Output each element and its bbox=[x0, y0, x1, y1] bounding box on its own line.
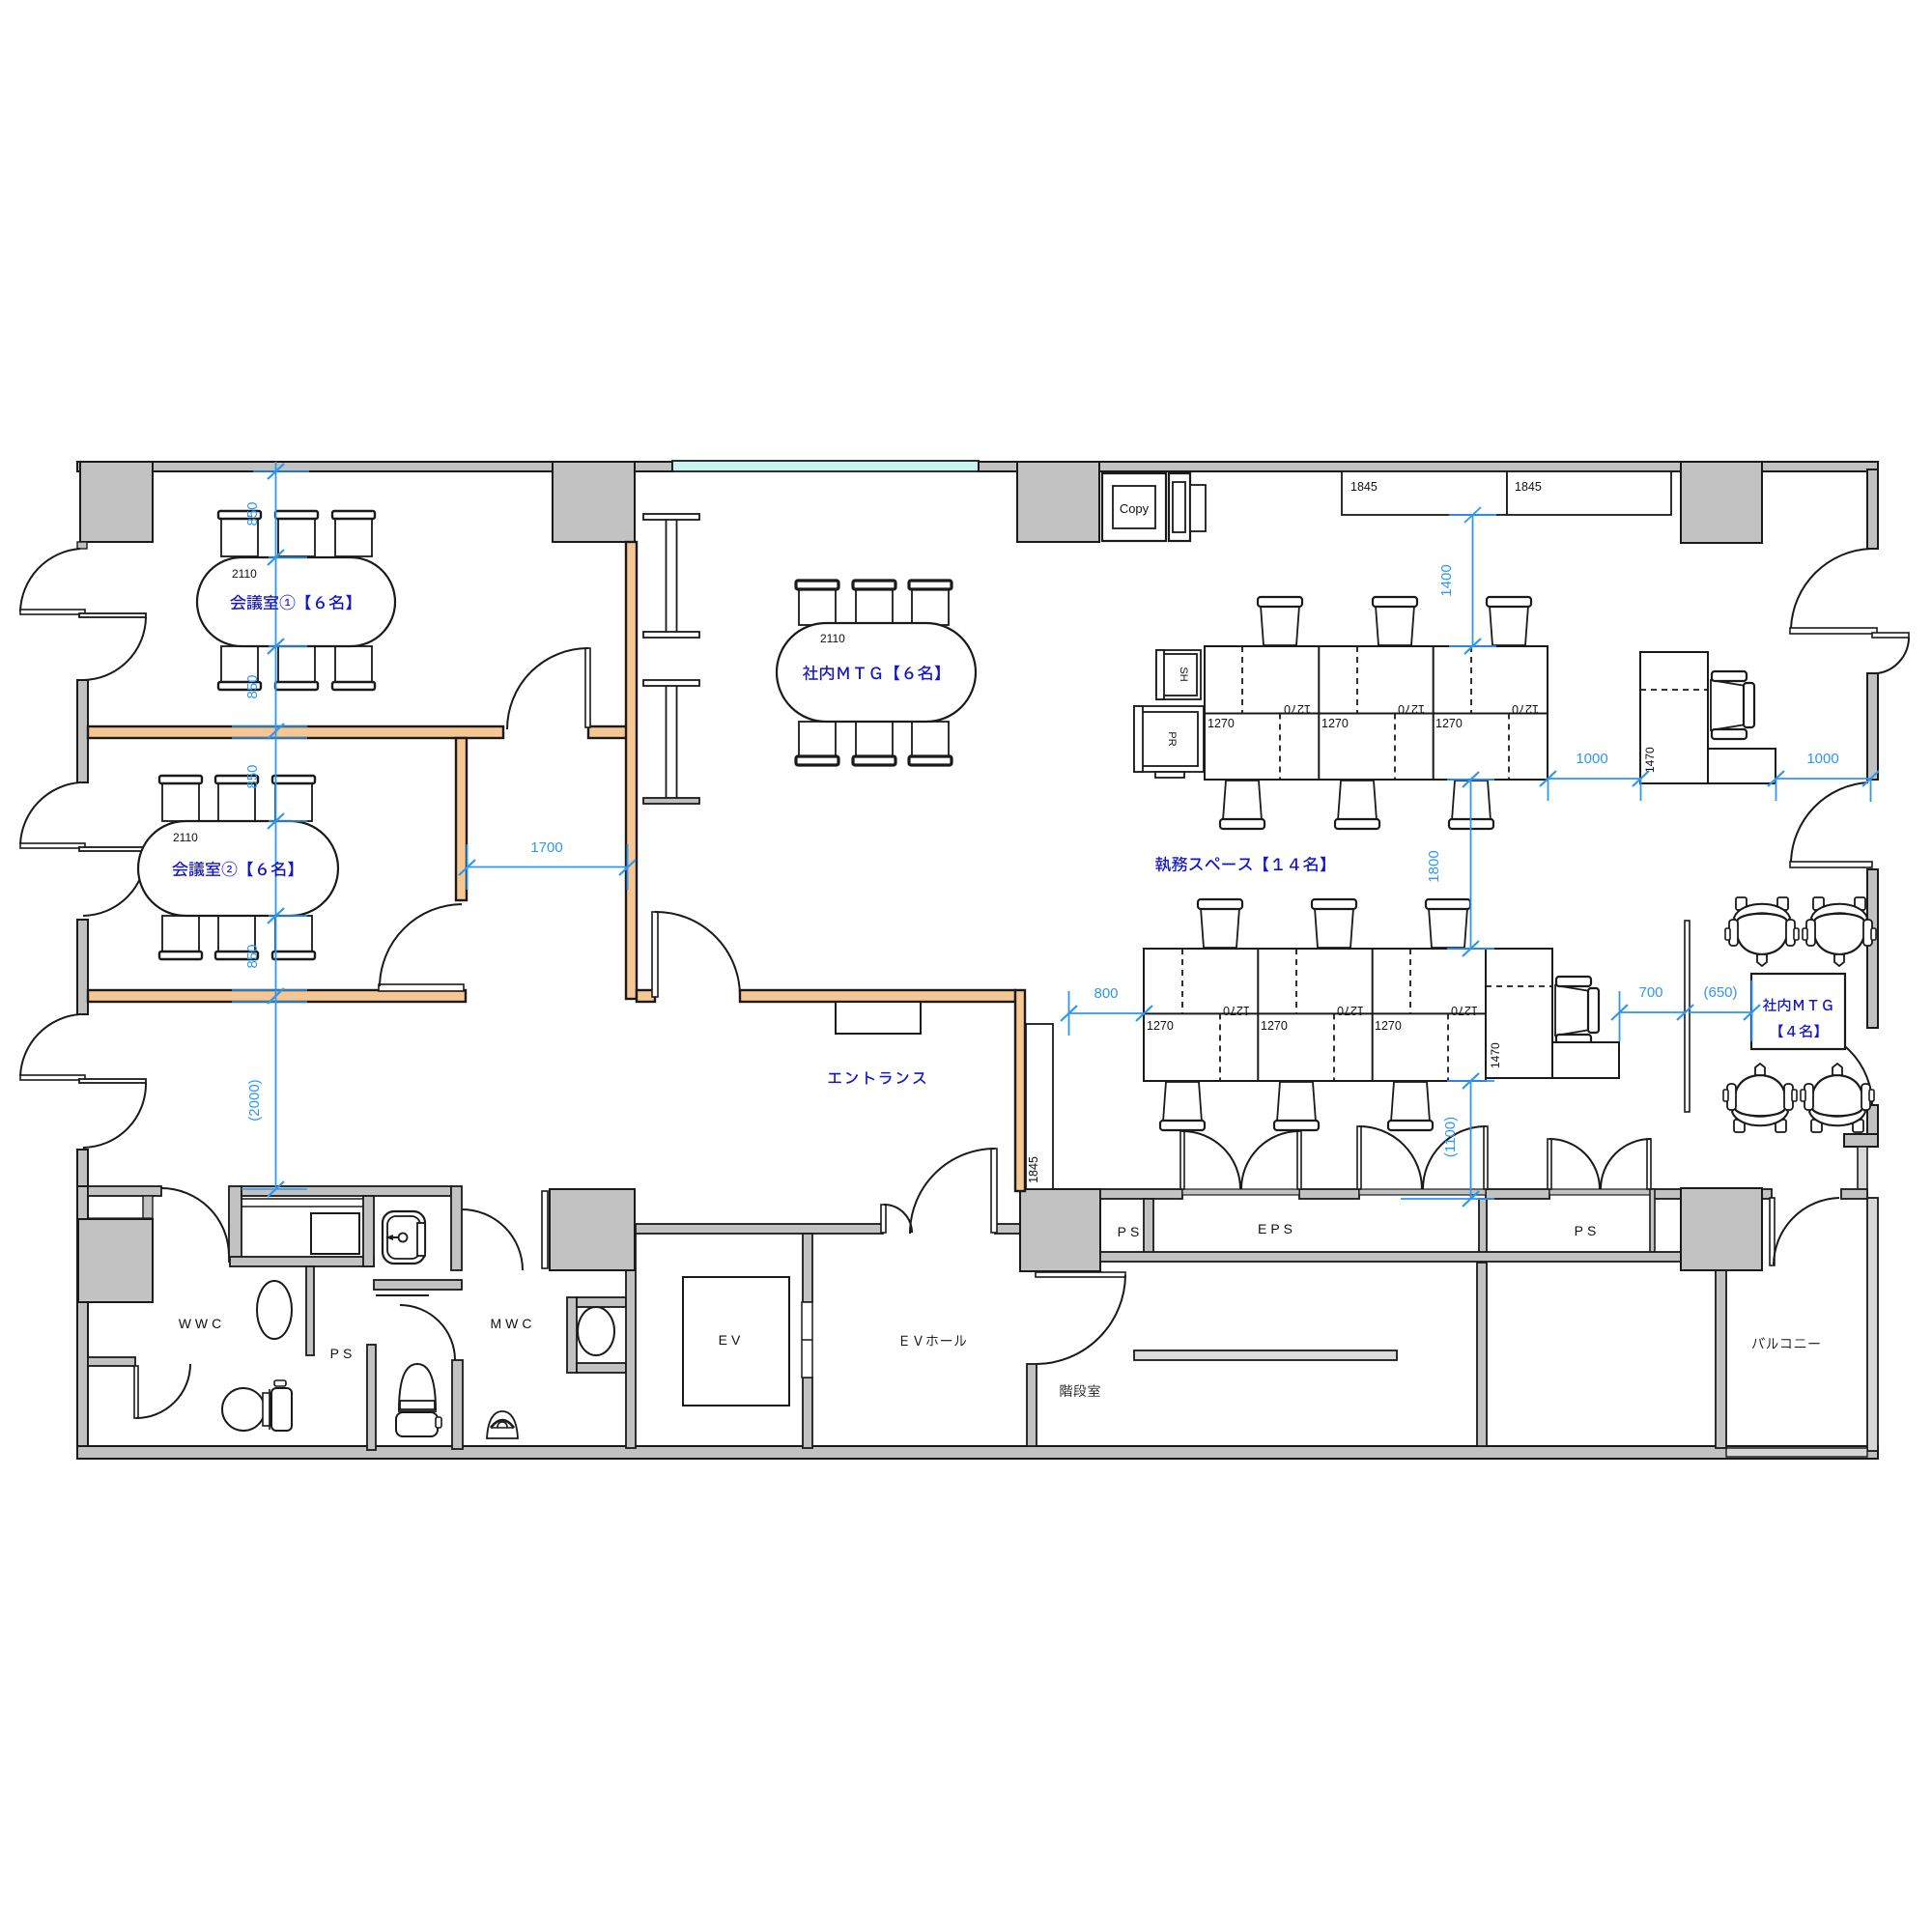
svg-text:2110: 2110 bbox=[232, 567, 257, 581]
svg-text:850: 850 bbox=[244, 501, 261, 526]
svg-text:700: 700 bbox=[1638, 984, 1662, 1001]
svg-text:1845: 1845 bbox=[1027, 1156, 1040, 1183]
svg-text:PS: PS bbox=[1118, 1224, 1144, 1239]
svg-text:1700: 1700 bbox=[530, 839, 562, 856]
svg-text:850: 850 bbox=[244, 674, 261, 698]
svg-text:Copy: Copy bbox=[1120, 501, 1150, 516]
svg-text:1000: 1000 bbox=[1806, 751, 1838, 767]
svg-text:PS: PS bbox=[1575, 1223, 1601, 1238]
svg-text:1270: 1270 bbox=[1261, 1019, 1288, 1033]
svg-text:2110: 2110 bbox=[173, 831, 198, 844]
svg-text:(1100): (1100) bbox=[1442, 1117, 1459, 1157]
svg-text:1470: 1470 bbox=[1489, 1042, 1502, 1068]
svg-text:EPS: EPS bbox=[1258, 1221, 1296, 1236]
svg-text:1270: 1270 bbox=[1207, 717, 1235, 730]
svg-text:850: 850 bbox=[244, 764, 261, 788]
svg-text:1270: 1270 bbox=[1337, 1004, 1364, 1017]
svg-text:1470: 1470 bbox=[1643, 747, 1657, 773]
svg-text:1400: 1400 bbox=[1438, 564, 1455, 596]
svg-text:1270: 1270 bbox=[1451, 1004, 1478, 1017]
svg-text:1270: 1270 bbox=[1398, 702, 1425, 716]
svg-text:SH: SH bbox=[1178, 667, 1189, 681]
svg-text:1270: 1270 bbox=[1321, 717, 1349, 730]
svg-text:1270: 1270 bbox=[1435, 717, 1463, 730]
svg-text:1270: 1270 bbox=[1284, 702, 1311, 716]
svg-text:800: 800 bbox=[1094, 985, 1118, 1002]
svg-text:PS: PS bbox=[330, 1346, 356, 1361]
svg-text:2110: 2110 bbox=[820, 632, 845, 645]
svg-text:EV: EV bbox=[719, 1332, 745, 1348]
svg-text:1270: 1270 bbox=[1375, 1019, 1402, 1033]
svg-text:1845: 1845 bbox=[1350, 480, 1378, 494]
svg-text:(650): (650) bbox=[1703, 984, 1737, 1001]
svg-text:1000: 1000 bbox=[1576, 751, 1607, 767]
svg-text:MWC: MWC bbox=[491, 1316, 536, 1331]
svg-text:(2000): (2000) bbox=[246, 1079, 263, 1121]
svg-text:WWC: WWC bbox=[179, 1316, 226, 1331]
svg-text:850: 850 bbox=[244, 944, 261, 968]
svg-text:1800: 1800 bbox=[1426, 850, 1442, 882]
svg-text:1270: 1270 bbox=[1147, 1019, 1174, 1033]
svg-text:PR: PR bbox=[1166, 731, 1178, 746]
svg-text:1845: 1845 bbox=[1515, 480, 1542, 494]
svg-text:1270: 1270 bbox=[1512, 702, 1539, 716]
svg-text:1270: 1270 bbox=[1223, 1004, 1250, 1017]
